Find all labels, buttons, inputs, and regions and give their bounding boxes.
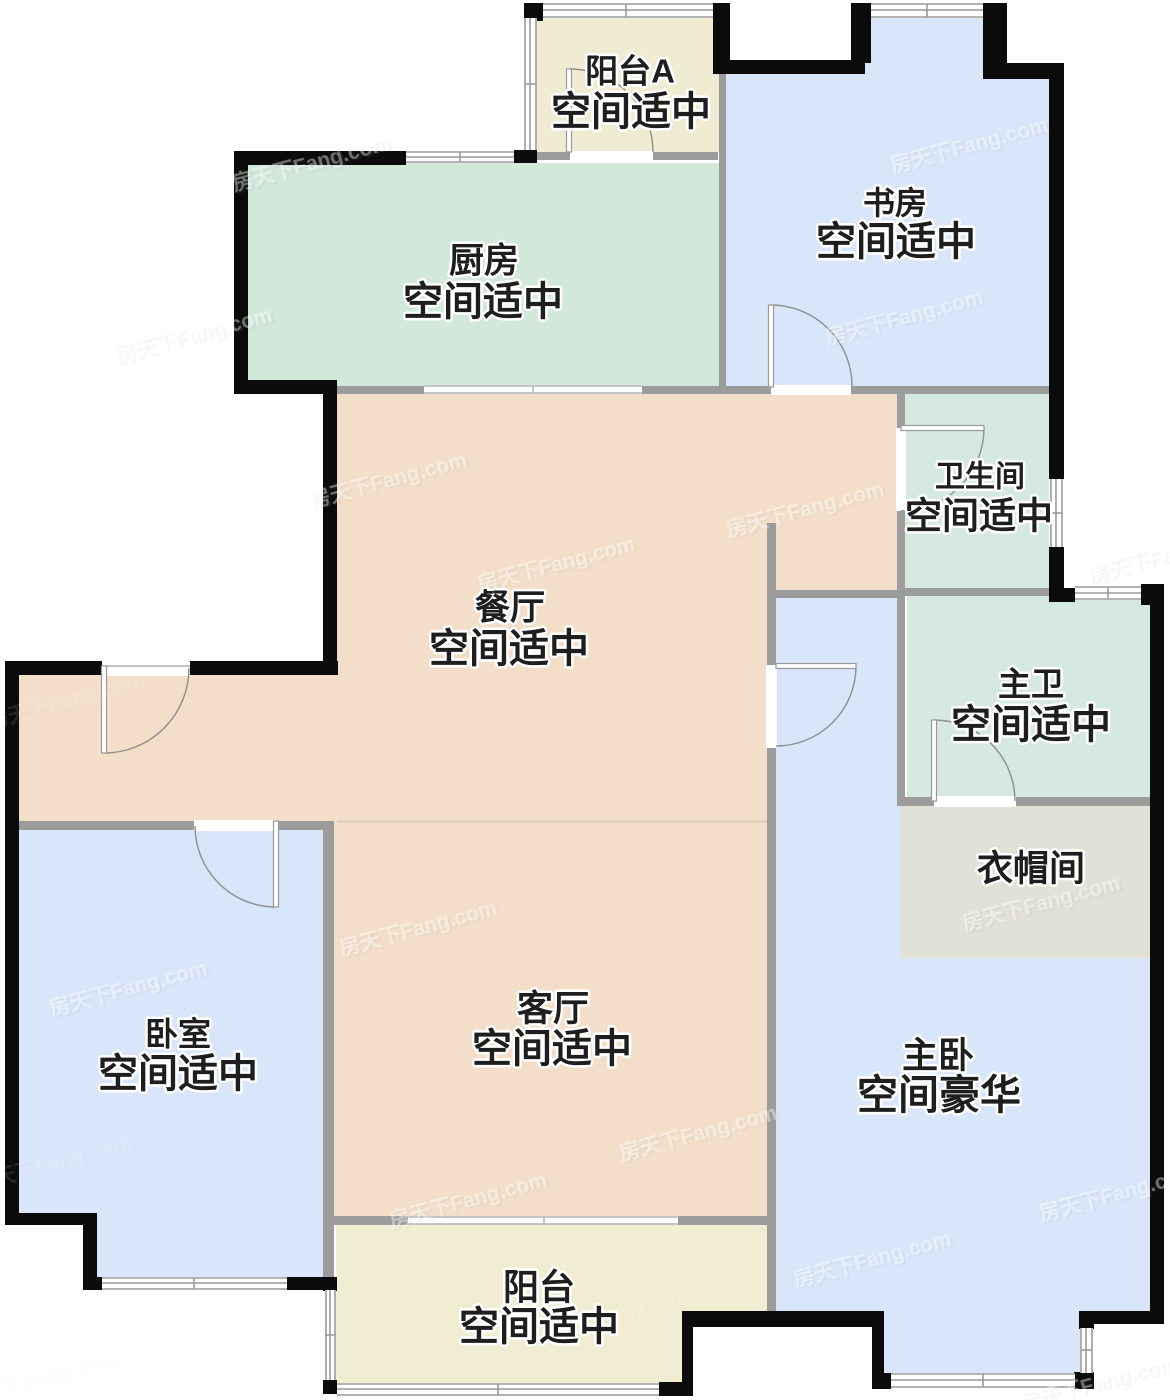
svg-text:书房: 书房 [863, 185, 927, 221]
svg-text:衣帽间: 衣帽间 [977, 848, 1085, 889]
svg-text:空间适中: 空间适中 [403, 280, 563, 324]
svg-text:阳台A: 阳台A [585, 53, 675, 90]
svg-text:卧室: 卧室 [145, 1016, 211, 1053]
svg-text:空间适中: 空间适中 [905, 496, 1053, 537]
svg-text:阳台: 阳台 [503, 1267, 575, 1308]
svg-text:主卧: 主卧 [902, 1035, 974, 1076]
svg-text:厨房: 厨房 [449, 242, 519, 281]
svg-text:客厅: 客厅 [517, 988, 589, 1029]
svg-text:空间豪华: 空间豪华 [857, 1072, 1021, 1118]
svg-text:主卫: 主卫 [998, 666, 1064, 703]
svg-text:餐厅: 餐厅 [475, 589, 545, 628]
svg-text:空间适中: 空间适中 [816, 220, 976, 264]
svg-text:空间适中: 空间适中 [472, 1027, 632, 1071]
svg-text:空间适中: 空间适中 [951, 703, 1111, 747]
svg-text:空间适中: 空间适中 [459, 1305, 619, 1349]
svg-text:卫生间: 卫生间 [935, 461, 1025, 494]
svg-text:空间适中: 空间适中 [429, 627, 589, 671]
svg-text:空间适中: 空间适中 [551, 90, 711, 134]
svg-text:空间适中: 空间适中 [98, 1052, 258, 1096]
